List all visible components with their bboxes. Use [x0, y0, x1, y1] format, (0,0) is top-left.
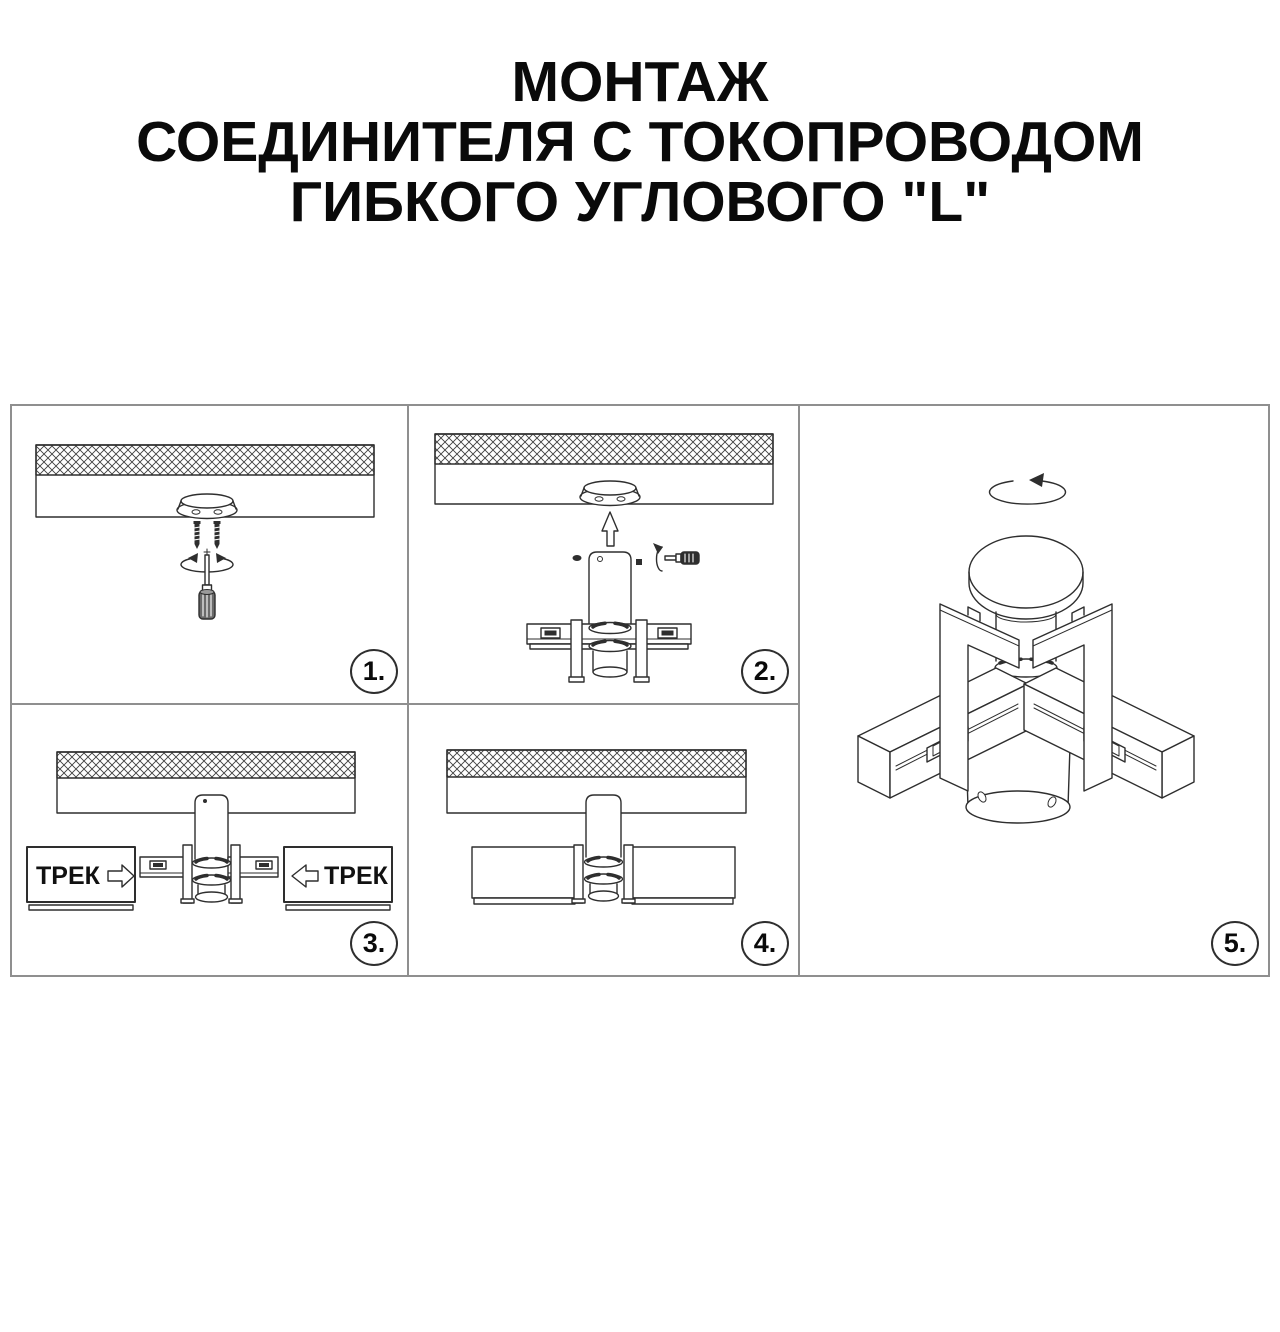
step-number-badge: 4. [741, 921, 789, 966]
screwdriver-horizontal-icon [653, 543, 699, 571]
step4-drawing [409, 705, 798, 975]
track-label-right: ТРЕК [324, 862, 389, 890]
step-number-badge: 2. [741, 649, 789, 694]
step-number-badge: 3. [350, 921, 398, 966]
connector-body [586, 795, 621, 857]
track-label-box-right: ТРЕК [284, 847, 392, 910]
track-stub [140, 857, 187, 877]
mounting-plate [580, 481, 640, 506]
track-label-left: ТРЕК [36, 862, 101, 890]
mounting-plate [177, 494, 237, 519]
arrow-up-icon [602, 512, 618, 546]
step-number-badge: 5. [1211, 921, 1259, 966]
panel-step-1: 1. [10, 404, 409, 705]
step2-drawing [409, 406, 798, 703]
flexible-lower-cylinder [966, 746, 1070, 823]
screw-icon [194, 521, 201, 549]
connector-body [195, 795, 228, 859]
connector-lower-body [196, 885, 228, 902]
contact-rings [585, 857, 623, 884]
screwdriver-icon [199, 549, 215, 619]
panel-step-2: 2. [407, 404, 800, 705]
panel-step-4: 4. [407, 703, 800, 977]
step1-drawing [12, 406, 407, 703]
connector-body [573, 552, 643, 624]
connector-lower-body [589, 884, 619, 901]
connector-lower-body [593, 651, 627, 677]
page-title: МОНТАЖ СОЕДИНИТЕЛЯ С ТОКОПРОВОДОМ ГИБКОГ… [0, 52, 1280, 232]
step3-drawing: ТРЕК ТРЕК [12, 705, 407, 975]
instruction-panels: 1. [10, 404, 1270, 977]
instruction-sheet: { "title": { "line1": "МОНТАЖ", "line2":… [0, 52, 1280, 1332]
contact-rings [193, 858, 231, 885]
set-screw-icon [636, 559, 642, 565]
step-number-badge: 1. [350, 649, 398, 694]
set-screw-icon [573, 555, 582, 561]
panel-step-5: 5. [798, 404, 1270, 977]
title-line-2: СОЕДИНИТЕЛЯ С ТОКОПРОВОДОМ [0, 112, 1280, 172]
panel-step-3: ТРЕК ТРЕК 3. [10, 703, 409, 977]
rotation-arrow-icon [990, 473, 1066, 504]
track-label-box-left: ТРЕК [27, 847, 135, 910]
screw-icon [214, 521, 221, 549]
title-line-3: ГИБКОГО УГЛОВОГО "L" [0, 172, 1280, 232]
step5-drawing [800, 406, 1268, 975]
title-line-1: МОНТАЖ [0, 52, 1280, 112]
